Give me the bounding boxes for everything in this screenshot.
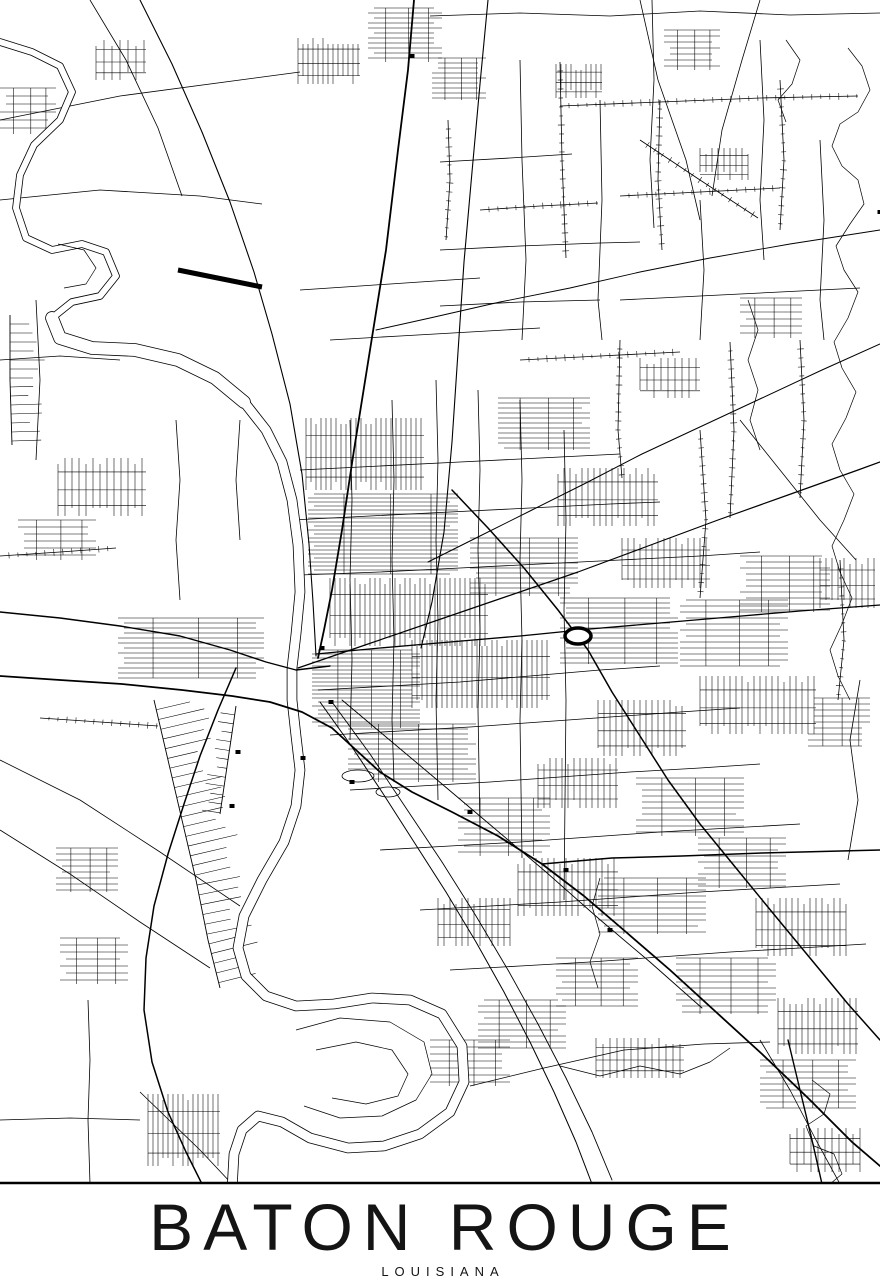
poster-subtitle: LOUISIANA xyxy=(0,1264,880,1279)
built-up-block xyxy=(350,780,355,784)
built-up-block xyxy=(236,750,241,754)
built-up-block xyxy=(608,928,613,932)
built-up-block xyxy=(230,804,235,808)
built-up-block xyxy=(329,700,334,704)
built-up-block xyxy=(320,646,325,650)
runway-bar xyxy=(178,270,262,287)
mississippi-river xyxy=(0,42,464,1190)
stadium-oval xyxy=(565,628,591,644)
map-layers xyxy=(0,0,880,1190)
city-map xyxy=(0,0,880,1190)
built-up-block xyxy=(468,810,473,814)
poster: BATON ROUGE LOUISIANA xyxy=(0,0,880,1284)
rural-roads-layer xyxy=(0,62,858,988)
built-up-block xyxy=(410,54,415,58)
built-up-block xyxy=(301,756,306,760)
lake xyxy=(342,770,374,782)
landmarks-layer xyxy=(178,54,880,932)
poster-caption: BATON ROUGE LOUISIANA xyxy=(0,1186,880,1284)
built-up-block xyxy=(564,868,569,872)
poster-title: BATON ROUGE xyxy=(0,1194,880,1260)
